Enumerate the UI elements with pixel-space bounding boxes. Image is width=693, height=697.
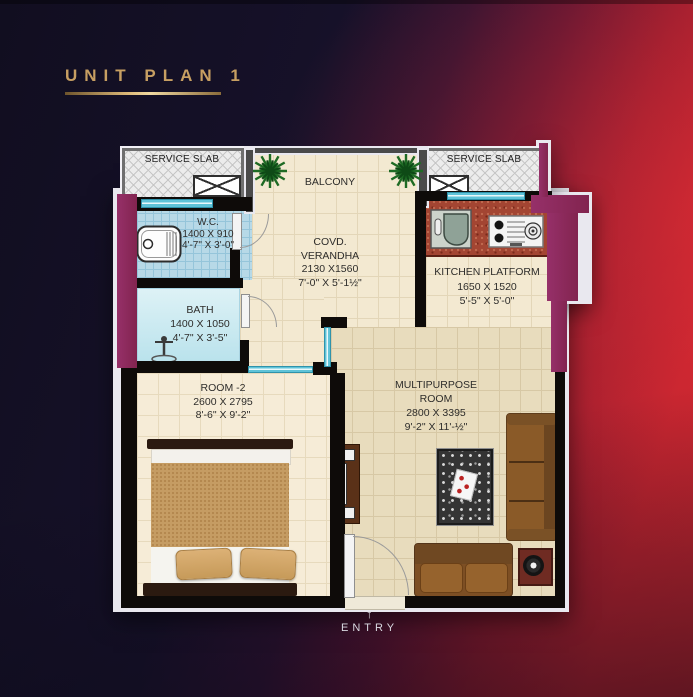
wc-dim-mm: 1400 X 910 [160, 229, 256, 241]
kitchen-name: KITCHEN PLATFORM [418, 265, 556, 280]
pillow [239, 548, 296, 581]
wall-bottom-left [121, 596, 345, 608]
balcony-label: BALCONY [280, 176, 380, 188]
bath-dim-ft: 4'-7" X 3'-5" [148, 331, 252, 345]
bath-name: BATH [148, 303, 252, 317]
wall-t-bar-magenta [531, 195, 589, 213]
kitchen-label: KITCHEN PLATFORM 1650 X 1520 5'-5" X 5'-… [418, 265, 556, 309]
wall-right-lower [555, 372, 565, 608]
side-table [518, 548, 553, 586]
sofa-cushion-seam [509, 500, 544, 502]
window-kitchen-top [447, 192, 525, 200]
sofa-right [506, 413, 558, 541]
vent-box-icon [193, 175, 241, 197]
sofa-armrest [507, 529, 557, 540]
sofa-bottom [414, 543, 513, 597]
sofa-backrest [415, 544, 512, 564]
window-wc-top [141, 199, 213, 208]
entry-threshold [345, 596, 405, 610]
bed-footboard [147, 439, 293, 449]
kitchen-dim-ft: 5'-5" X 5'-0" [418, 294, 556, 309]
kitchen-dim-mm: 1650 X 1520 [418, 280, 556, 295]
window-room2-top [248, 366, 313, 373]
kitchen-sink-icon [430, 209, 472, 249]
floor-plan: SERVICE SLAB SERVICE SLAB [0, 0, 693, 697]
bath-dim-mm: 1400 X 1050 [148, 317, 252, 331]
wall-left-magenta [117, 194, 137, 368]
mpr-dim-mm: 2800 X 3395 [374, 406, 498, 420]
sofa-armrest [507, 414, 557, 425]
window-passage [324, 327, 331, 367]
verandah-name-2: VERANDHA [268, 250, 392, 264]
sofa-cushion-seam [509, 461, 544, 463]
bed-headboard [143, 583, 297, 596]
wall-room2-mpr [330, 373, 345, 596]
wc-label: W.C. 1400 X 910 4'-7" X 3'-0" [160, 217, 256, 252]
room2-dim-ft: 8'-6" X 9'-2" [160, 409, 286, 423]
entry-arrow: ↑ [366, 606, 373, 621]
wall-bath-bottom [121, 361, 248, 373]
table-bowl-icon [523, 555, 544, 576]
sofa-cushion [465, 563, 508, 593]
verandah-dim-mm: 2130 X1560 [268, 263, 392, 277]
bed-blanket [151, 463, 289, 547]
wall-bottom-right [405, 596, 564, 608]
mpr-name-2: ROOM [374, 392, 498, 406]
wall-slab-right-magenta [539, 143, 548, 197]
plant-icon [386, 150, 426, 192]
sofa-cushion [420, 563, 463, 593]
room2-dim-mm: 2600 X 2795 [160, 396, 286, 410]
gas-stove-icon [488, 215, 544, 248]
mpr-name-1: MULTIPURPOSE [374, 378, 498, 392]
balcony-label-text: BALCONY [280, 176, 380, 188]
multipurpose-label: MULTIPURPOSE ROOM 2800 X 3395 9'-2" X 11… [374, 378, 498, 434]
playing-card [450, 469, 478, 501]
pillow [175, 548, 232, 581]
bath-label: BATH 1400 X 1050 4'-7" X 3'-5" [148, 303, 252, 345]
wall-wc-right [230, 248, 240, 285]
wall-left-lower [121, 368, 137, 608]
mpr-dim-ft: 9'-2" X 11'-½" [374, 420, 498, 434]
rug [437, 449, 493, 525]
wall-wc-bath [133, 278, 243, 288]
room2-name: ROOM -2 [160, 382, 286, 396]
wc-name: W.C. [160, 217, 256, 229]
unit-plan-page: UNIT PLAN 1 SERVICE SLAB SERVICE SLAB [0, 0, 693, 697]
service-slab-right-label: SERVICE SLAB [429, 154, 539, 165]
verandah-name-1: COVD. [268, 236, 392, 250]
entry-label: ENTRY [341, 622, 398, 634]
wc-dim-ft: 4'-7" X 3'-0" [160, 240, 256, 252]
verandah-label: COVD. VERANDHA 2130 X1560 7'-0" X 5'-1½" [268, 236, 392, 290]
service-slab-left-label: SERVICE SLAB [127, 154, 237, 165]
service-slab-left: SERVICE SLAB [122, 148, 244, 200]
verandah-dim-ft: 7'-0" X 5'-1½" [268, 277, 392, 291]
room2-label: ROOM -2 2600 X 2795 8'-6" X 9'-2" [160, 382, 286, 423]
